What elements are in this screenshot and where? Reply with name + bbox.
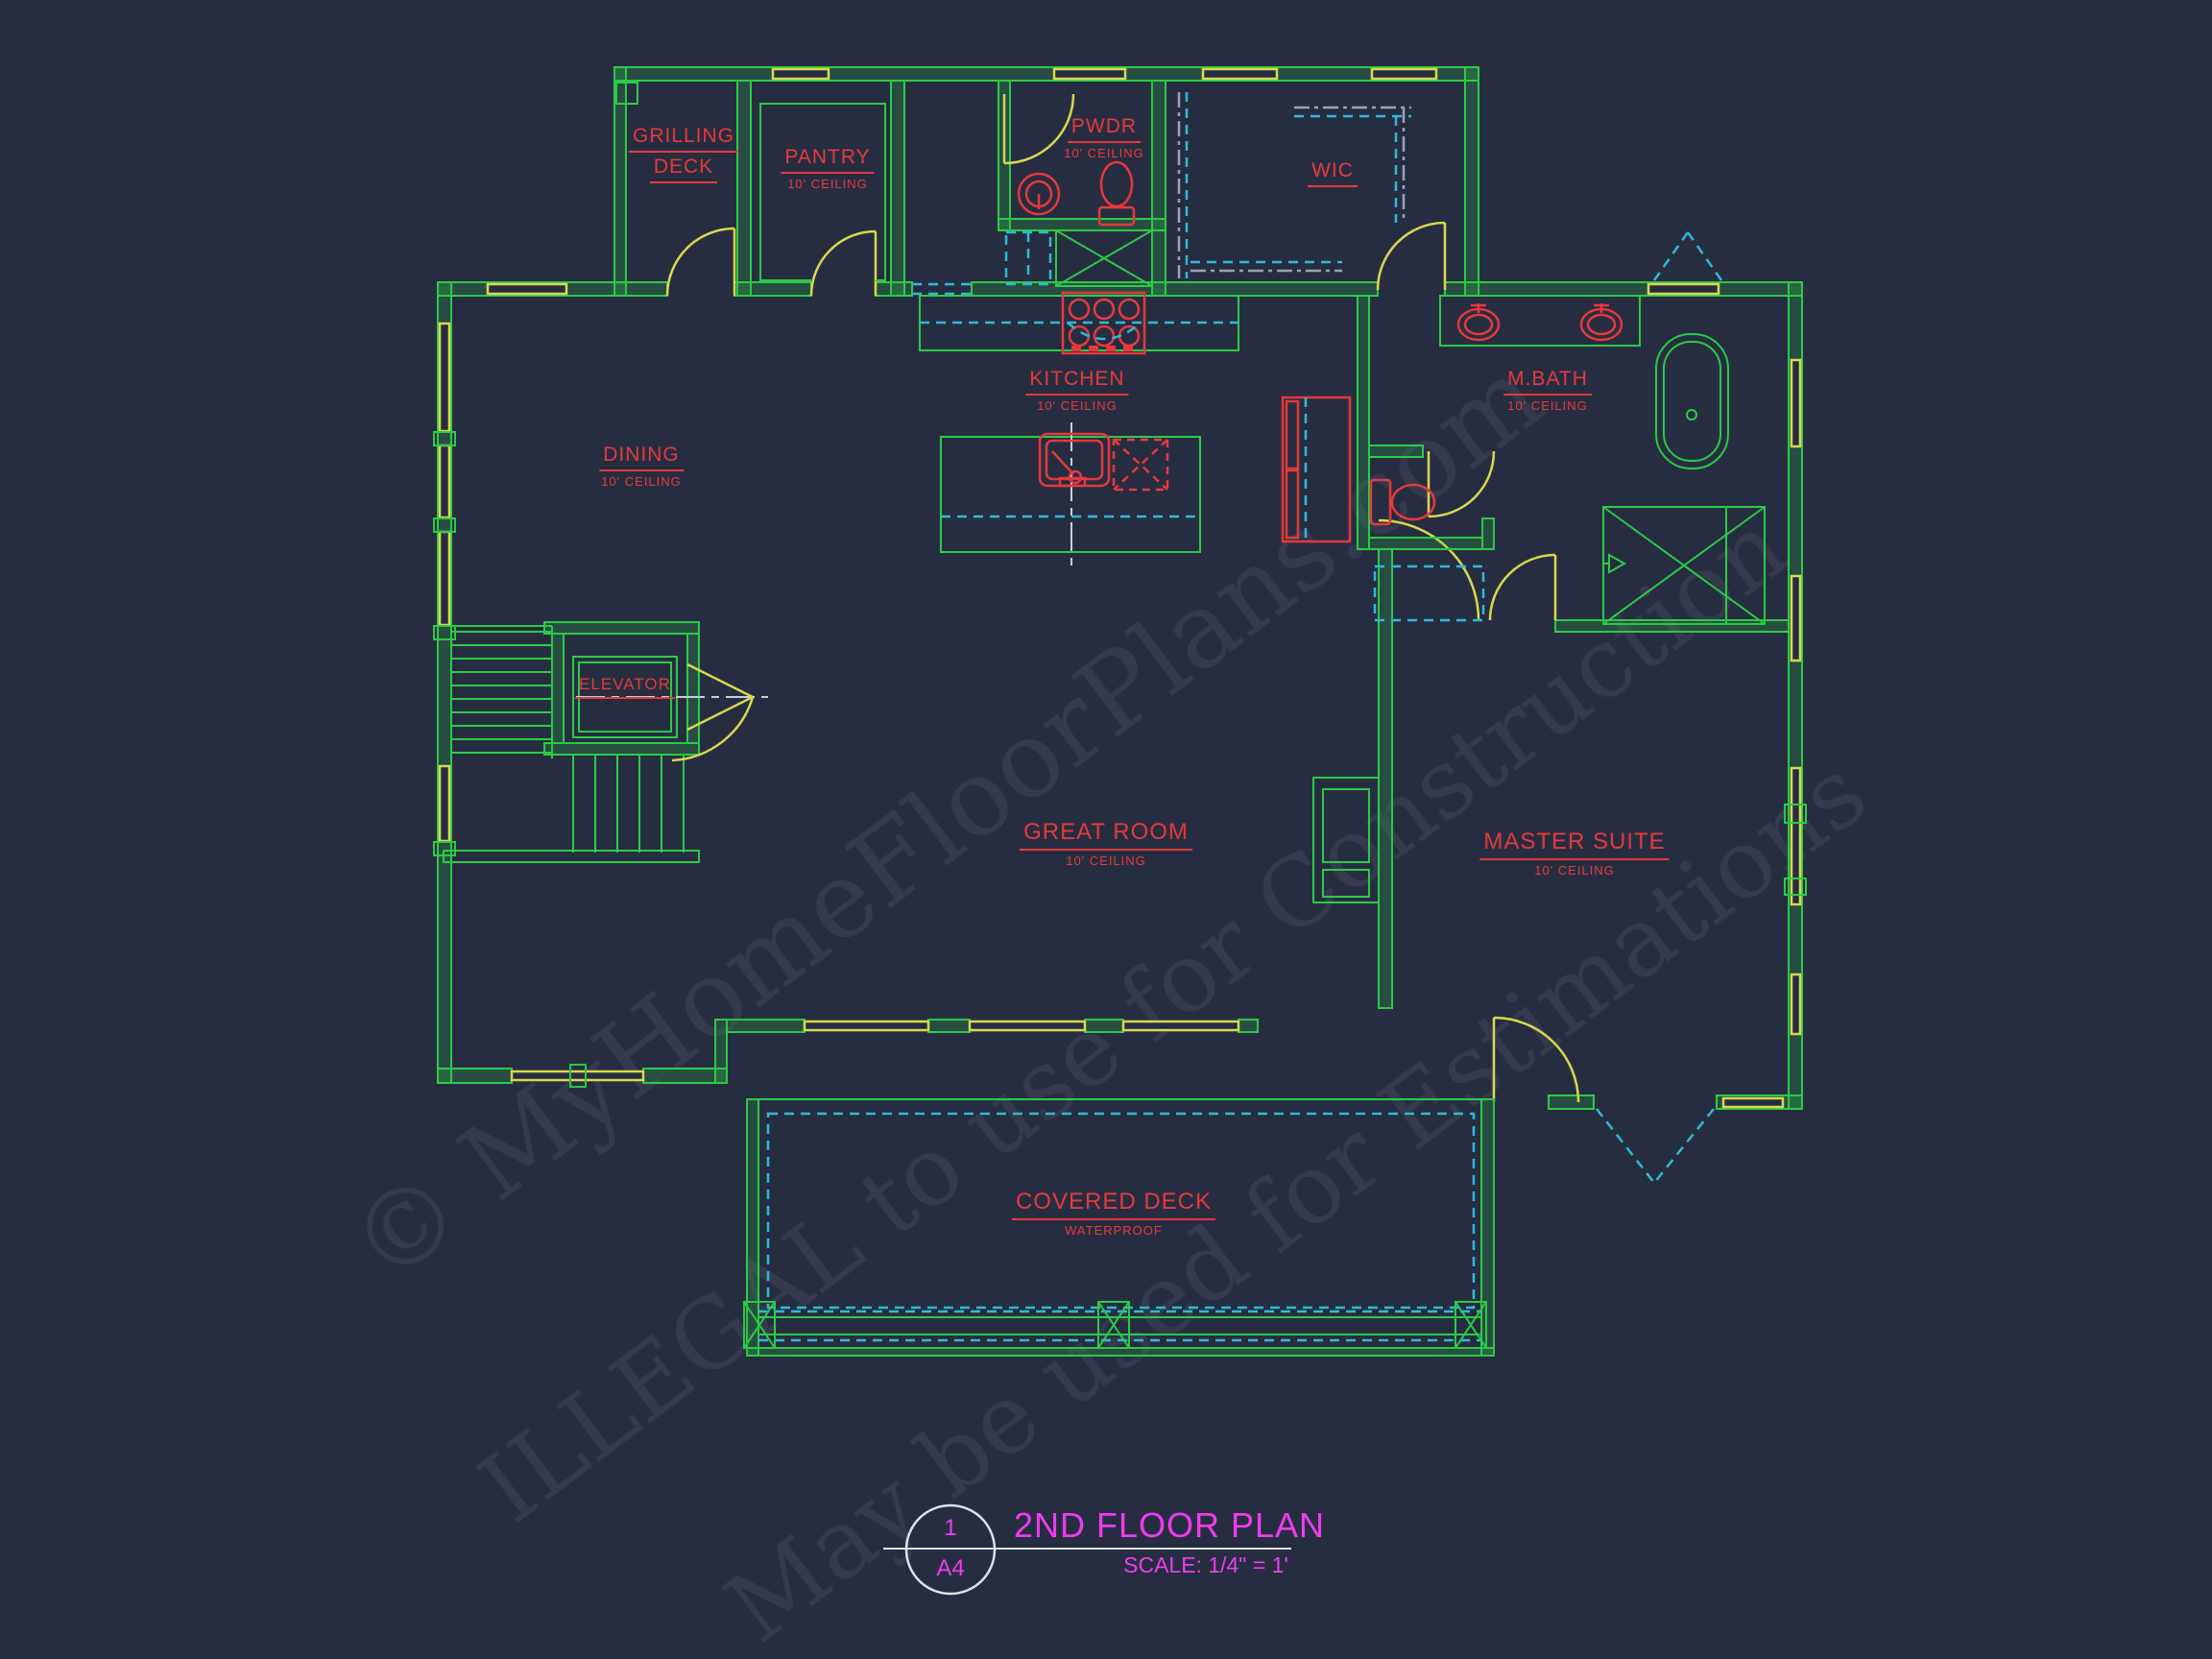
page-title: 2ND FLOOR PLAN [1014, 1505, 1325, 1546]
room-label-great-room: GREAT ROOM 10' CEILING [1020, 819, 1192, 869]
sheet-number: A4 [936, 1555, 964, 1582]
grilling-deck-line1: GRILLING [629, 125, 738, 153]
room-label-pantry: PANTRY 10' CEILING [781, 146, 874, 192]
room-label-kitchen: KITCHEN 10' CEILING [1025, 368, 1128, 414]
room-label-pwdr: PWDR 10' CEILING [1064, 115, 1144, 161]
room-label-covered-deck: COVERED DECK WATERPROOF [1012, 1189, 1215, 1238]
doors [667, 94, 1721, 1183]
kitchen-fixtures [920, 293, 1350, 570]
grilling-deck-line2: DECK [650, 156, 717, 183]
scale-note: SCALE: 1/4" = 1' [1123, 1552, 1288, 1578]
floor-plan-canvas: © MyHomeFloorPlans.com ILLEGAL to use fo… [0, 0, 2212, 1659]
room-label-master-suite: MASTER SUITE 10' CEILING [1479, 829, 1669, 878]
master-bath-fixtures [1440, 296, 1765, 624]
room-label-elevator: ELEVATOR [575, 675, 675, 699]
room-label-mbath: M.BATH 10' CEILING [1503, 368, 1592, 414]
room-label-dining: DINING 10' CEILING [599, 444, 684, 490]
fireplace [1313, 778, 1379, 902]
room-label-grilling-deck: GRILLING DECK [629, 125, 738, 183]
room-label-wic: WIC [1308, 159, 1358, 187]
detail-number: 1 [944, 1515, 956, 1542]
wic-shelving [1179, 92, 1411, 278]
